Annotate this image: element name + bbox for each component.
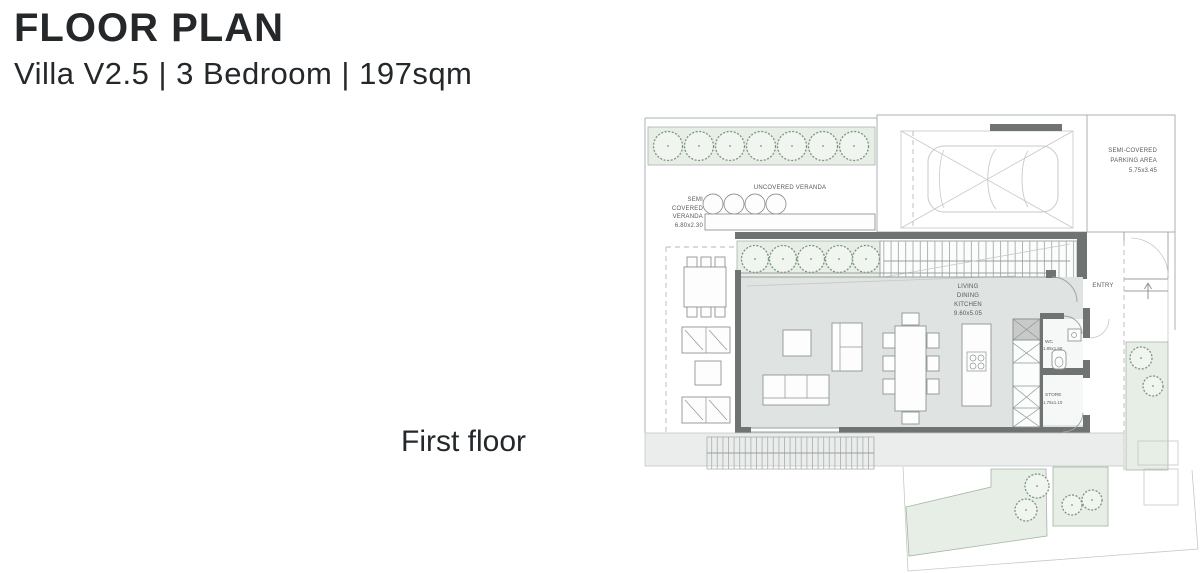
right-garden-strip xyxy=(1126,342,1178,505)
middle-band xyxy=(735,232,1087,279)
parking-area: SEMI-COVERED PARKING AREA 5.75x3.45 xyxy=(877,115,1175,232)
sofa-small xyxy=(832,323,862,371)
coffee-table xyxy=(783,330,811,356)
planter-circles xyxy=(703,194,786,214)
label-uncovered-veranda: UNCOVERED VERANDA xyxy=(754,185,826,191)
lower-terrace-band xyxy=(645,433,1124,469)
floor-label: First floor xyxy=(401,425,526,459)
label-parking-1: SEMI-COVERED xyxy=(1108,148,1157,154)
veranda-area: UNCOVERED VERANDA SEMI COVERED VERANDA 6… xyxy=(672,185,875,230)
label-semi-veranda-1: SEMI xyxy=(688,197,704,203)
label-wc: WC xyxy=(1045,339,1054,345)
label-entry: ENTRY xyxy=(1092,283,1113,289)
page-subtitle: Villa V2.5 | 3 Bedroom | 197sqm xyxy=(14,56,472,92)
label-semi-veranda-2: COVERED xyxy=(672,206,704,212)
label-parking-2: PARKING AREA xyxy=(1110,158,1157,164)
veranda-bench xyxy=(705,214,875,230)
page-header: FLOOR PLAN Villa V2.5 | 3 Bedroom | 197s… xyxy=(14,6,472,92)
deck-steps xyxy=(707,437,874,469)
label-store: STORE xyxy=(1045,392,1061,398)
bottom-garden xyxy=(903,467,1198,571)
label-living-1: LIVING xyxy=(958,284,979,290)
service-rooms: WC 1.85x1.50 STORE 1.75x1.10 xyxy=(1013,308,1109,432)
label-semi-veranda-3: VERANDA xyxy=(673,214,703,220)
parking-wall xyxy=(990,124,1062,131)
floor-plan-svg: UNCOVERED VERANDA SEMI COVERED VERANDA 6… xyxy=(640,108,1200,573)
floor-plan-drawing: UNCOVERED VERANDA SEMI COVERED VERANDA 6… xyxy=(640,108,1200,573)
label-semi-veranda-4: 6.80x2.30 xyxy=(675,223,704,229)
page-title: FLOOR PLAN xyxy=(14,6,472,51)
outdoor-dining-set xyxy=(684,257,726,317)
left-terrace xyxy=(666,247,734,452)
label-store-dim: 1.75x1.10 xyxy=(1043,400,1063,405)
sink-icon xyxy=(1068,329,1081,341)
kitchen-counter xyxy=(1013,319,1040,427)
label-living-2: DINING xyxy=(957,293,979,299)
tree-row-icons-2 xyxy=(742,246,880,273)
label-living-4: 9.60x5.05 xyxy=(954,311,983,317)
wall-segment xyxy=(1077,232,1087,279)
sun-loungers xyxy=(682,327,730,423)
toilet-icon xyxy=(1052,350,1066,369)
label-parking-3: 5.75x3.45 xyxy=(1129,168,1158,174)
kitchen-island xyxy=(962,324,991,406)
label-living-3: KITCHEN xyxy=(954,302,982,308)
sofa-large xyxy=(763,375,829,405)
top-tree-band xyxy=(648,127,875,165)
label-wc-dim: 1.85x1.50 xyxy=(1043,346,1063,351)
